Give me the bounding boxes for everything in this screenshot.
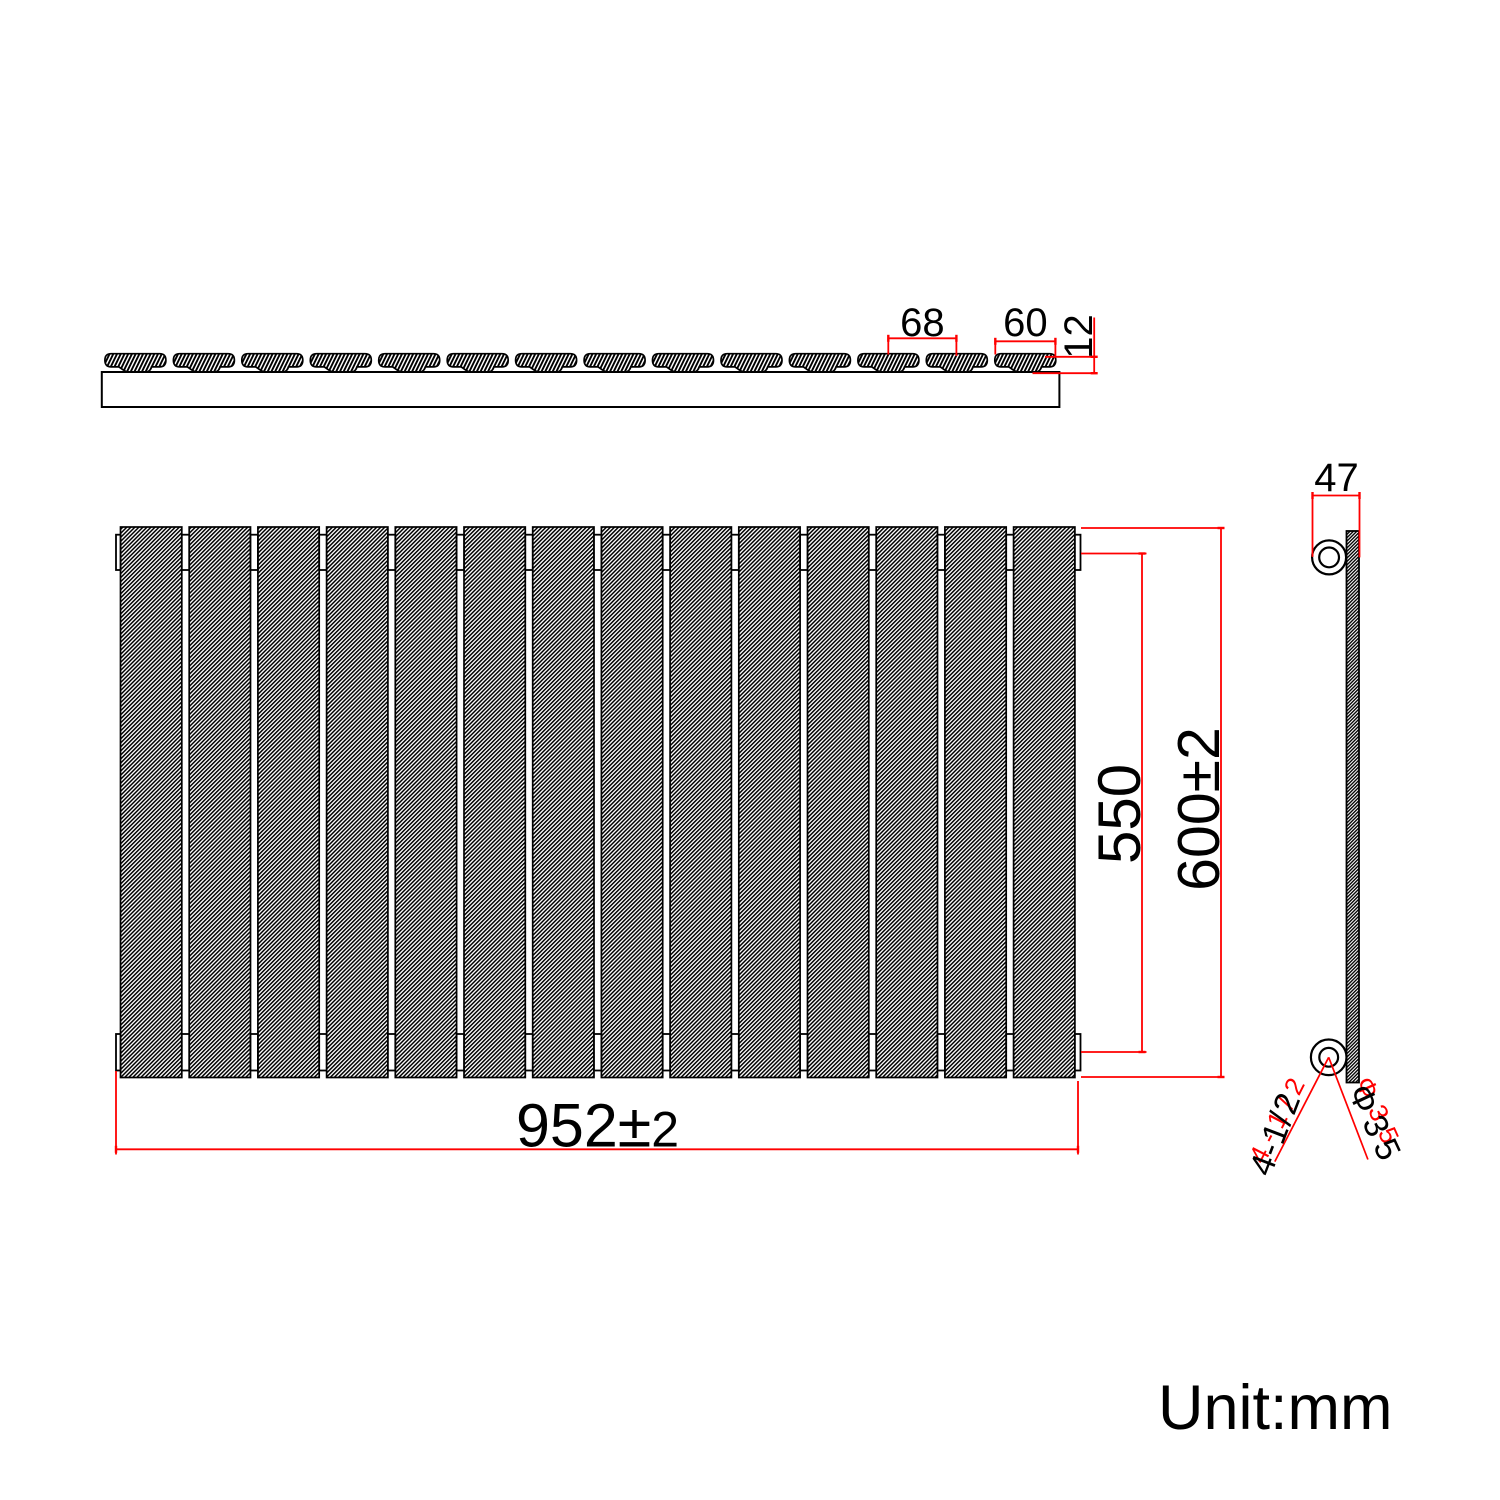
svg-text:550: 550 [1086, 764, 1153, 864]
svg-text:600±2: 600±2 [1166, 727, 1232, 891]
svg-text:Unit:mm: Unit:mm [1158, 1373, 1393, 1443]
svg-text:47: 47 [1314, 456, 1359, 500]
svg-text:68: 68 [900, 301, 945, 345]
svg-text:12: 12 [1057, 314, 1101, 359]
svg-text:60: 60 [1003, 301, 1048, 345]
svg-text:952±2: 952±2 [516, 1092, 679, 1160]
